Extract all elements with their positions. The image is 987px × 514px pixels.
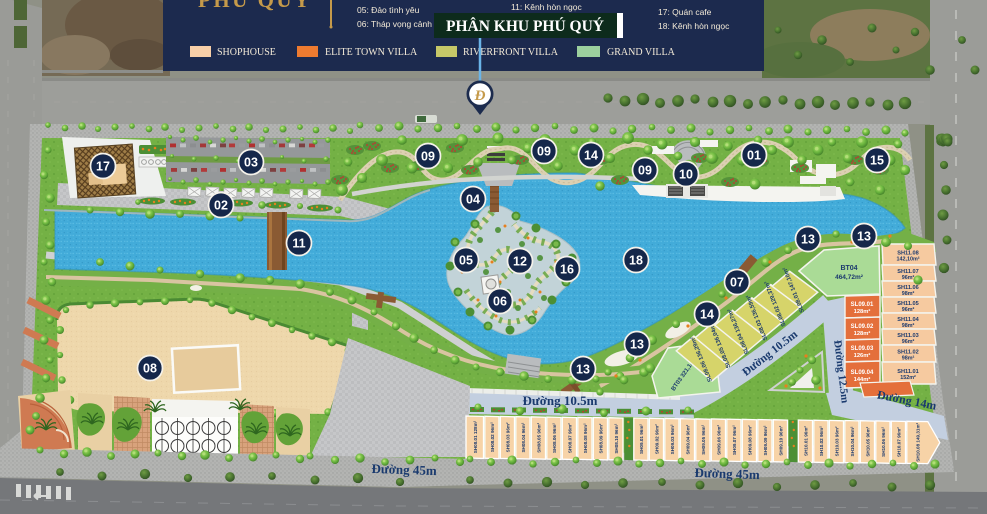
svg-text:SL09.01: SL09.01 [851, 302, 874, 308]
svg-text:PHÚ QUÝ: PHÚ QUÝ [198, 0, 312, 12]
svg-text:SH08.10 96m²: SH08.10 96m² [614, 423, 619, 453]
svg-text:15: 15 [870, 154, 884, 168]
svg-text:SH09.02 96m²: SH09.02 96m² [654, 424, 659, 454]
svg-text:18: Kênh hòn ngọc: 18: Kênh hòn ngọc [658, 21, 730, 31]
svg-text:18: 18 [629, 254, 643, 268]
svg-text:SH10.01 96m²: SH10.01 96m² [803, 426, 808, 456]
svg-text:11: Kênh hòn ngọc: 11: Kênh hòn ngọc [511, 2, 582, 12]
svg-text:142,10m²: 142,10m² [896, 257, 919, 263]
svg-text:SH09.07 96m²: SH09.07 96m² [732, 425, 737, 455]
svg-text:SH08.09 96m²: SH08.09 96m² [598, 423, 603, 453]
svg-text:13: 13 [630, 338, 644, 352]
svg-text:SH08.05 96m²: SH08.05 96m² [536, 422, 541, 452]
svg-text:14: 14 [584, 149, 598, 163]
svg-text:06: Tháp vọng cảnh: 06: Tháp vọng cảnh [357, 19, 432, 29]
svg-text:GRAND VILLA: GRAND VILLA [607, 47, 676, 58]
svg-text:SH08.08 96m²: SH08.08 96m² [583, 423, 588, 453]
svg-text:17: Quán cafe: 17: Quán cafe [658, 7, 712, 17]
svg-text:96m²: 96m² [902, 339, 915, 345]
svg-text:ELITE TOWN VILLA: ELITE TOWN VILLA [325, 47, 418, 58]
svg-text:96m²: 96m² [902, 307, 915, 313]
svg-text:SH08.07 96m²: SH08.07 96m² [567, 423, 572, 453]
svg-text:14: 14 [700, 308, 714, 322]
svg-text:10: 10 [679, 168, 693, 182]
svg-text:144m²: 144m² [854, 376, 871, 383]
svg-text:01: 01 [747, 149, 761, 163]
svg-text:SH08.03 96m²: SH08.03 96m² [505, 422, 510, 452]
svg-text:SH08.01 128m²: SH08.01 128m² [473, 420, 478, 453]
svg-text:SL09.04: SL09.04 [851, 370, 874, 376]
svg-text:SH10.07 96m²: SH10.07 96m² [896, 427, 901, 457]
svg-text:SH10.04 96m²: SH10.04 96m² [850, 426, 855, 456]
svg-text:RIVERFRONT VILLA: RIVERFRONT VILLA [463, 47, 559, 58]
svg-text:96m²: 96m² [902, 275, 915, 281]
svg-text:PHÂN KHU PHÚ QUÝ: PHÂN KHU PHÚ QUÝ [446, 18, 604, 35]
svg-text:SH08.02 96m²: SH08.02 96m² [490, 422, 495, 452]
svg-text:SH09.10 96m²: SH09.10 96m² [778, 425, 783, 455]
svg-text:BT04: BT04 [840, 265, 857, 272]
svg-text:17: 17 [96, 160, 110, 174]
svg-text:98m²: 98m² [902, 291, 915, 297]
svg-text:Đường 10.5m: Đường 10.5m [523, 393, 598, 408]
svg-text:06: 06 [493, 295, 507, 309]
svg-text:SH10.06 96m²: SH10.06 96m² [881, 426, 886, 456]
svg-text:Đường 45m: Đường 45m [371, 461, 437, 478]
svg-text:SH10.02 96m²: SH10.02 96m² [819, 426, 824, 456]
svg-text:02: 02 [214, 199, 228, 213]
svg-text:09: 09 [638, 164, 652, 178]
svg-text:12: 12 [513, 255, 527, 269]
svg-text:464,72m²: 464,72m² [835, 274, 864, 281]
svg-text:SL09.02: SL09.02 [851, 324, 874, 330]
svg-text:Đ: Đ [474, 88, 486, 104]
svg-text:09: 09 [421, 150, 435, 164]
svg-text:13: 13 [576, 363, 590, 377]
svg-text:98m²: 98m² [902, 356, 915, 362]
svg-text:07: 07 [730, 276, 744, 290]
svg-text:SH08.04 96m²: SH08.04 96m² [521, 422, 526, 452]
svg-text:04: 04 [466, 193, 480, 207]
svg-text:16: 16 [560, 263, 574, 277]
svg-text:09: 09 [537, 145, 551, 159]
svg-text:128m²: 128m² [854, 330, 871, 337]
svg-text:13: 13 [857, 230, 871, 244]
svg-text:SH09.04 96m²: SH09.04 96m² [685, 424, 690, 454]
svg-text:152m²: 152m² [900, 375, 916, 381]
svg-text:SH10.03 96m²: SH10.03 96m² [834, 426, 839, 456]
svg-text:08: 08 [143, 362, 157, 376]
svg-text:98m²: 98m² [902, 323, 915, 329]
svg-text:SL09.03: SL09.03 [851, 346, 874, 352]
svg-text:SH08.06 96m²: SH08.06 96m² [552, 423, 557, 453]
svg-text:SH10.08 149,31m²: SH10.08 149,31m² [915, 422, 920, 461]
svg-text:SH09.08 96m²: SH09.08 96m² [747, 425, 752, 455]
svg-text:03: 03 [244, 156, 258, 170]
svg-text:SH09.03 96m²: SH09.03 96m² [670, 424, 675, 454]
svg-text:SHOPHOUSE: SHOPHOUSE [217, 47, 276, 58]
svg-text:SH09.09 96m²: SH09.09 96m² [763, 425, 768, 455]
svg-text:11: 11 [292, 237, 305, 251]
svg-text:Đường 45m: Đường 45m [694, 465, 760, 482]
svg-text:05: Đảo tình yêu: 05: Đảo tình yêu [357, 5, 420, 15]
svg-text:SH10.05 96m²: SH10.05 96m² [865, 426, 870, 456]
svg-text:SH09.05 96m²: SH09.05 96m² [701, 424, 706, 454]
svg-text:128m²: 128m² [854, 308, 871, 315]
svg-text:05: 05 [459, 254, 473, 268]
svg-text:SH09.06 96m²: SH09.06 96m² [716, 424, 721, 454]
svg-text:126m²: 126m² [854, 352, 871, 359]
svg-text:13: 13 [801, 233, 815, 247]
svg-text:SH09.01 96m²: SH09.01 96m² [639, 424, 644, 454]
